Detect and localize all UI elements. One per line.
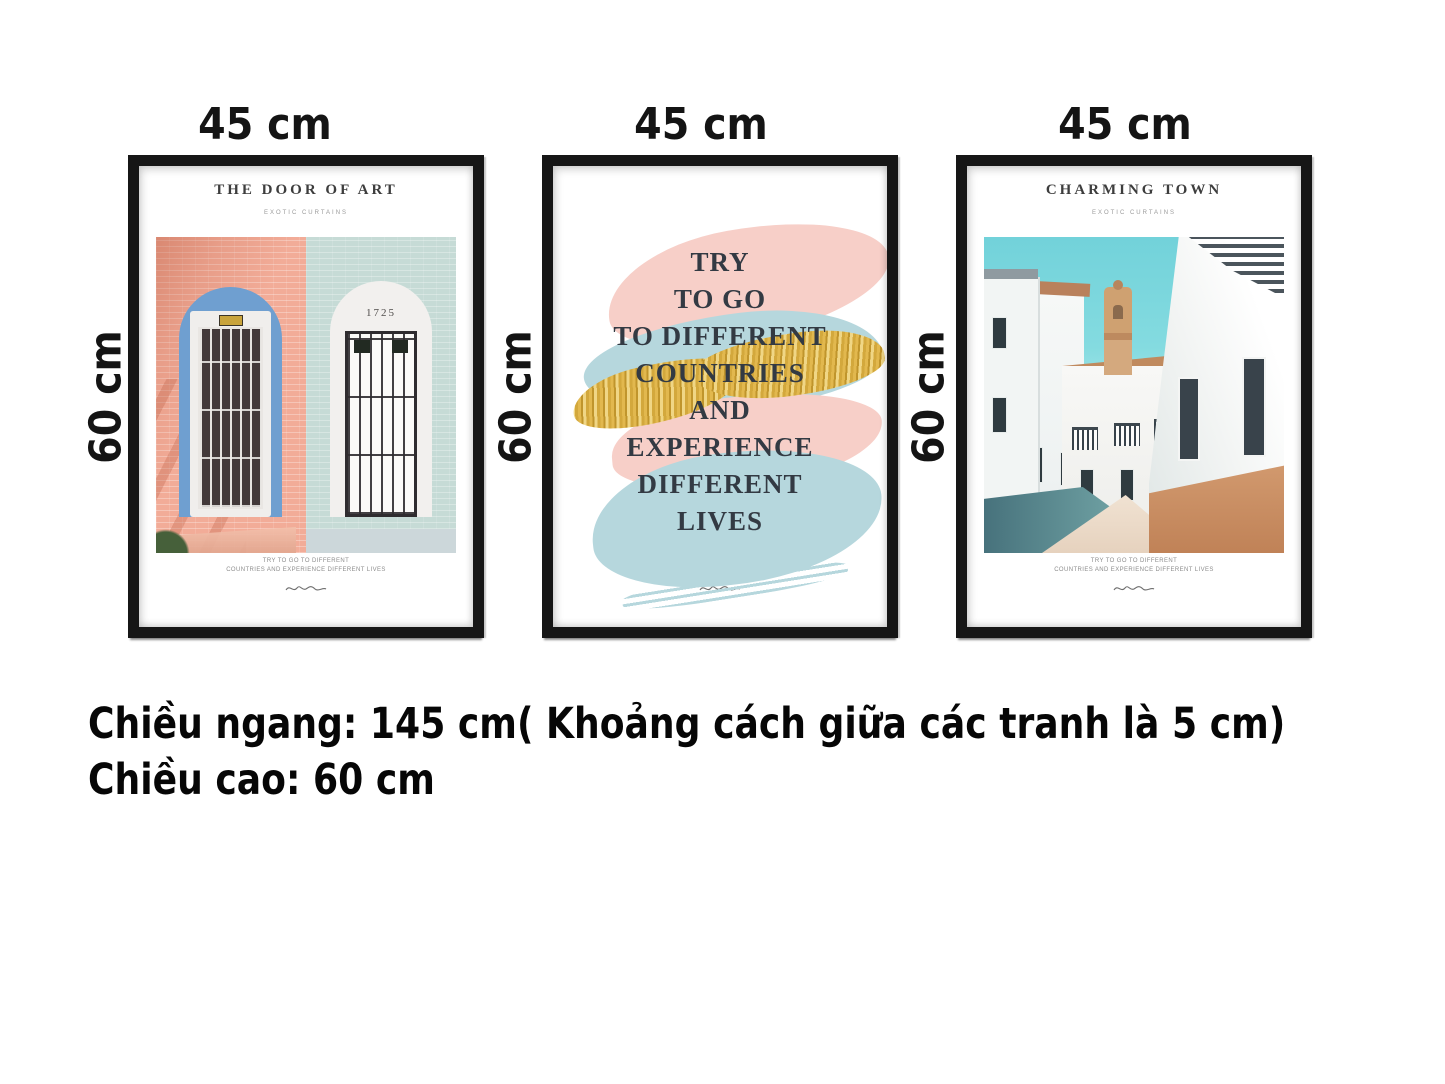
poster3-photo-street-scene <box>984 237 1284 553</box>
picture-frame-charming-town: CHARMING TOWN EXOTIC CURTAINS <box>956 155 1312 638</box>
window <box>992 317 1007 349</box>
white-arch-doorway: 1725 <box>330 281 432 517</box>
poster1-caption-line1: TRY TO GO TO DIFFERENT <box>139 558 473 564</box>
poster1-caption-line2: COUNTRIES AND EXPERIENCE DIFFERENT LIVES <box>139 567 473 573</box>
white-door-frame <box>190 311 271 517</box>
width-label-frame-3: 45 cm <box>1058 99 1192 150</box>
door-number: 1725 <box>330 307 432 319</box>
door-window-pane <box>354 340 370 353</box>
pink-brick-wall <box>156 237 306 553</box>
blue-arch-doorway <box>179 287 282 517</box>
quote-line: EXPERIENCE <box>553 429 887 466</box>
mint-brick-wall: 1725 <box>306 237 456 553</box>
quote-line: COUNTRIES <box>553 355 887 392</box>
signature-scribble <box>1112 582 1156 594</box>
quote-line: LIVES <box>553 503 887 540</box>
quote-line: AND <box>553 392 887 429</box>
poster-travel-quote: TRY TO GO TO DIFFERENT COUNTRIES AND EXP… <box>553 166 887 627</box>
window <box>992 397 1007 433</box>
poster1-subtitle: EXOTIC CURTAINS <box>139 210 473 216</box>
poster1-title: THE DOOR OF ART <box>139 182 473 199</box>
plant <box>156 526 193 553</box>
picture-frame-door-of-art: THE DOOR OF ART EXOTIC CURTAINS <box>128 155 484 638</box>
poster1-signature <box>139 582 473 600</box>
quote-line: TO GO <box>553 281 887 318</box>
balcony <box>1114 423 1140 446</box>
tall-window <box>1242 357 1266 457</box>
quote-text-block: TRY TO GO TO DIFFERENT COUNTRIES AND EXP… <box>553 244 887 540</box>
door-window-pane <box>392 340 408 353</box>
left-door-security-grate <box>198 327 263 509</box>
summary-width-text: Chiều ngang: 145 cm( Khoảng cách giữa cá… <box>88 699 1285 749</box>
poster3-caption-line2: COUNTRIES AND EXPERIENCE DIFFERENT LIVES <box>967 567 1301 573</box>
balcony <box>1072 427 1098 450</box>
signature-scribble <box>284 582 328 594</box>
poster3-signature <box>967 582 1301 600</box>
width-label-frame-1: 45 cm <box>198 99 332 150</box>
height-label-frame-2: 60 cm <box>491 330 542 464</box>
poster-charming-town: CHARMING TOWN EXOTIC CURTAINS <box>967 166 1301 627</box>
poster3-title: CHARMING TOWN <box>967 182 1301 199</box>
quote-line: TO DIFFERENT <box>553 318 887 355</box>
poster-door-of-art: THE DOOR OF ART EXOTIC CURTAINS <box>139 166 473 627</box>
quote-line: DIFFERENT <box>553 466 887 503</box>
poster-set-dimension-diagram: 45 cm 45 cm 45 cm 60 cm 60 cm 60 cm THE … <box>0 0 1445 1084</box>
quote-line: TRY <box>553 244 887 281</box>
summary-height-text: Chiều cao: 60 cm <box>88 755 435 805</box>
height-label-frame-1: 60 cm <box>81 330 132 464</box>
poster3-subtitle: EXOTIC CURTAINS <box>967 210 1301 216</box>
door-sign <box>219 315 243 326</box>
width-label-frame-2: 45 cm <box>634 99 768 150</box>
pavement <box>306 529 456 553</box>
height-label-frame-3: 60 cm <box>904 330 955 464</box>
church-bell-tower <box>1104 287 1132 375</box>
poster1-photo-two-doors: 1725 <box>156 237 456 553</box>
picture-frame-travel-quote: TRY TO GO TO DIFFERENT COUNTRIES AND EXP… <box>542 155 898 638</box>
poster3-caption-line1: TRY TO GO TO DIFFERENT <box>967 558 1301 564</box>
right-door-security-grate <box>345 331 417 517</box>
tall-window <box>1178 377 1200 461</box>
